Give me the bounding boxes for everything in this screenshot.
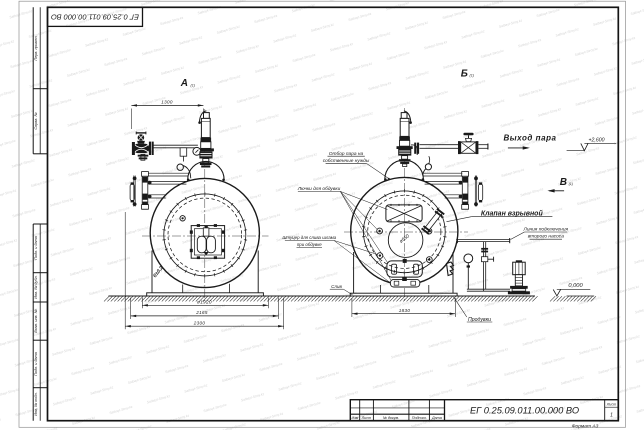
svg-text:А: А — [180, 78, 188, 89]
svg-text:Подп. и дата: Подп. и дата — [34, 236, 38, 260]
svg-text:2300: 2300 — [193, 321, 206, 326]
svg-text:Лист: Лист — [361, 416, 372, 420]
svg-text:2165: 2165 — [195, 310, 208, 315]
svg-text:(1): (1) — [191, 83, 195, 87]
svg-text:1: 1 — [610, 413, 613, 419]
svg-text:Инв. № подл.: Инв. № подл. — [34, 392, 38, 416]
svg-text:Отбор пара на: Отбор пара на — [329, 151, 364, 157]
svg-text:Клапан взрывной: Клапан взрывной — [481, 209, 544, 217]
svg-text:Лист: Лист — [606, 402, 617, 406]
svg-text:Изм: Изм — [351, 416, 358, 420]
svg-text:1300: 1300 — [161, 99, 173, 104]
svg-text:Подп. и дата: Подп. и дата — [34, 352, 38, 376]
svg-text:Линия подключения: Линия подключения — [523, 227, 569, 233]
svg-text:0,000: 0,000 — [568, 283, 583, 289]
svg-text:Штуцер для слива шлама: Штуцер для слива шлама — [282, 235, 336, 240]
svg-text:(1): (1) — [470, 74, 474, 78]
svg-text:собственные нужды: собственные нужды — [323, 158, 370, 164]
svg-text:Взам. инв. №: Взам. инв. № — [34, 309, 38, 332]
svg-text:№ докум.: № докум. — [383, 416, 399, 420]
svg-text:ø1920: ø1920 — [197, 300, 212, 305]
svg-text:Формат А3: Формат А3 — [572, 423, 599, 429]
svg-text:Инв. № дубл.: Инв. № дубл. — [34, 275, 38, 298]
svg-text:Б: Б — [461, 68, 468, 79]
svg-text:+2,600: +2,600 — [588, 137, 604, 143]
svg-text:Выход пара: Выход пара — [503, 133, 556, 142]
svg-text:ЕГ 0.25.09.011.00.000 ВО: ЕГ 0.25.09.011.00.000 ВО — [470, 406, 579, 416]
svg-text:Перв. примен.: Перв. примен. — [34, 35, 38, 60]
svg-text:ЕГ 0.25.09.011.00.000 ВО: ЕГ 0.25.09.011.00.000 ВО — [51, 12, 139, 21]
svg-text:при обдувке: при обдувке — [297, 242, 322, 247]
svg-text:1830: 1830 — [399, 308, 411, 313]
svg-text:Подпись: Подпись — [412, 416, 427, 420]
svg-text:Справ. №: Справ. № — [34, 112, 38, 129]
svg-text:(1): (1) — [569, 182, 573, 186]
svg-text:Лючки для обдувки: Лючки для обдувки — [297, 186, 341, 192]
svg-text:В: В — [560, 177, 567, 188]
svg-text:Дата: Дата — [431, 416, 442, 420]
svg-text:Слив: Слив — [331, 284, 342, 289]
